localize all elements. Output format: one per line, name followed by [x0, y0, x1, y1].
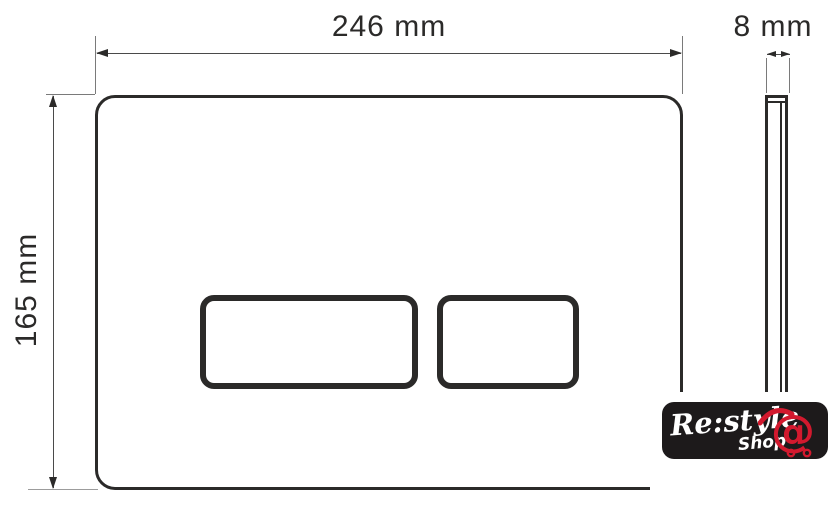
width-dimension-line: [97, 53, 681, 54]
restyle-shop-logo: Re:style Shop @: [662, 402, 828, 459]
extension-line-left-bottom: [28, 489, 98, 490]
extension-line-top-right: [682, 36, 683, 94]
arrowhead-up-icon: [49, 95, 57, 107]
arrowhead-right-icon: [670, 49, 682, 57]
flush-plate-side-view: [765, 95, 788, 398]
height-dimension-label: 165 mm: [11, 210, 43, 370]
side-view-top-edge: [768, 101, 785, 103]
arrowhead-right-small-icon: [781, 51, 790, 57]
width-dimension-label: 246 mm: [289, 10, 489, 44]
extension-line-side-left: [766, 58, 767, 93]
arrowhead-down-icon: [49, 477, 57, 489]
technical-drawing-canvas: 246 mm 165 mm 8 mm Re:style Shop @: [0, 0, 840, 511]
cart-at-icon: @: [758, 403, 826, 459]
thickness-dimension-label: 8 mm: [718, 10, 828, 44]
height-dimension-line: [53, 96, 54, 488]
flush-button-small: [437, 295, 579, 389]
flush-plate-front-view: [95, 95, 683, 490]
extension-line-side-right: [789, 58, 790, 93]
side-view-inner-edge: [780, 101, 782, 398]
flush-button-large: [200, 295, 418, 389]
arrowhead-left-icon: [96, 49, 108, 57]
arrowhead-left-small-icon: [767, 51, 776, 57]
extension-line-top-left: [95, 36, 96, 94]
